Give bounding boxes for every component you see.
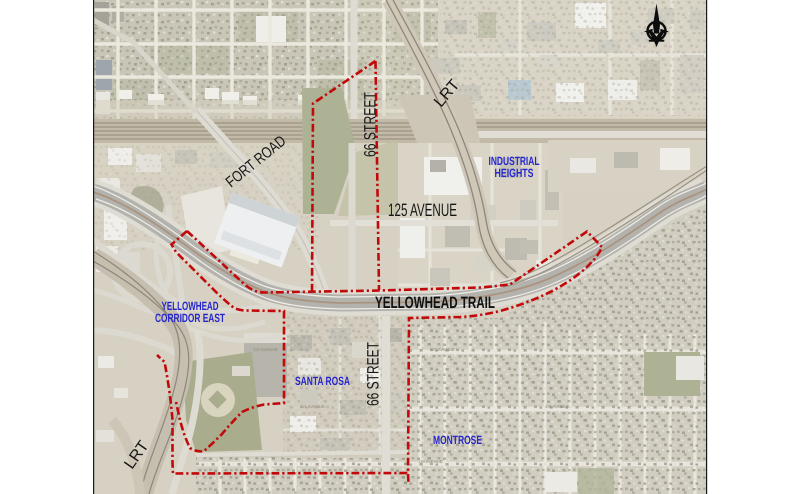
svg-text:121 AVENUE: 121 AVENUE: [545, 404, 570, 409]
svg-text:YELLOWHEAD TRAIL: YELLOWHEAD TRAIL: [375, 294, 495, 312]
svg-text:HEIGHTS: HEIGHTS: [495, 166, 534, 180]
svg-text:119 AVENUE: 119 AVENUE: [418, 459, 443, 464]
svg-text:122 AVENUE: 122 AVENUE: [430, 347, 455, 352]
svg-text:122 AVENUE: 122 AVENUE: [253, 347, 278, 352]
svg-text:66 STREET: 66 STREET: [365, 342, 383, 406]
svg-text:66 STREET: 66 STREET: [362, 92, 380, 157]
svg-text:125 AVENUE: 125 AVENUE: [388, 200, 457, 220]
svg-text:MONTROSE: MONTROSE: [433, 433, 482, 447]
svg-text:CORRIDOR EAST: CORRIDOR EAST: [155, 311, 225, 325]
svg-text:SANTA ROSA: SANTA ROSA: [295, 374, 350, 388]
svg-text:121 AVENUE: 121 AVENUE: [300, 404, 325, 409]
